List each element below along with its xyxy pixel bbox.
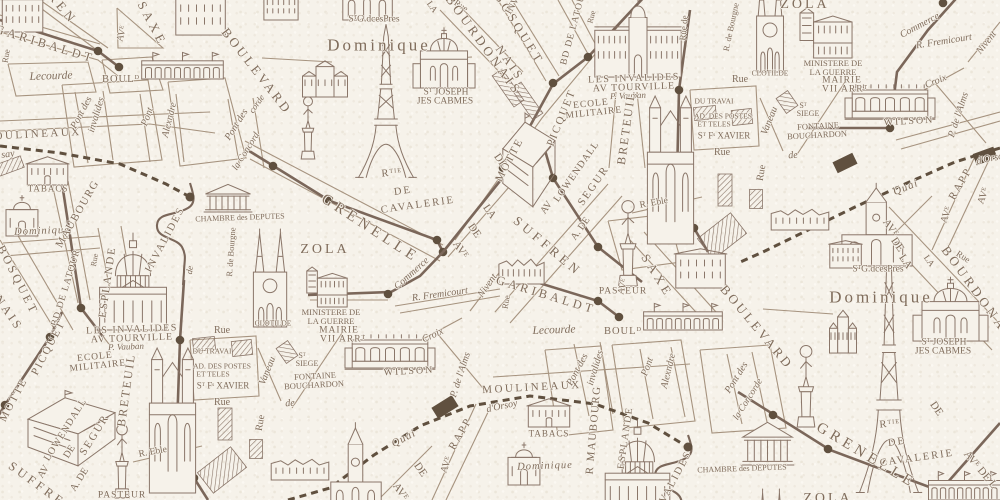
ministere-guerre-icon — [307, 267, 347, 307]
ste-clotilde-icon — [253, 229, 286, 327]
street — [5, 248, 100, 256]
map-label-du-travai: DU TRAVAI — [193, 347, 232, 355]
map-label-s-g-dcespres: SᵀG.dcesPres — [348, 15, 399, 25]
metro-station-dot — [176, 336, 185, 345]
metro-station-dot — [115, 63, 124, 72]
metro-station-dot — [939, 0, 948, 7]
map-label-boul: BOULᴰ — [102, 75, 140, 86]
map-label-p-vauban: P. Vauban — [108, 342, 144, 352]
street — [262, 58, 332, 62]
map-label-dominique: Dominique — [829, 289, 933, 306]
paris-map-wallpaper: RENGARIBALDTLecourdeBOULᴰAVᴱSAXEBOULEVAR… — [0, 0, 1000, 500]
street — [245, 141, 443, 245]
metro-station-dot — [584, 53, 593, 62]
tabacs-building-icon — [527, 399, 571, 427]
palace-facade-icon — [644, 303, 723, 330]
les-invalides-facade-icon — [595, 0, 681, 77]
tabacs-building-icon — [26, 157, 69, 185]
hatched-block — [231, 339, 252, 356]
chambre-deputes-icon — [204, 184, 252, 212]
map-label-lecourde: Lecourde — [29, 71, 72, 84]
ministere-guerre-icon — [800, 8, 852, 58]
map-label-la-guerre: LA GUERRE — [308, 317, 355, 326]
metro-station-dot — [269, 162, 278, 171]
pasteur-statue-icon — [619, 201, 638, 286]
map-label-rue: Rue — [1, 49, 12, 64]
map-label-de: de — [185, 265, 195, 275]
invalides-dome-icon — [605, 420, 670, 500]
hatched-block — [218, 408, 232, 440]
map-label-jes-cabmes: JES CABMES — [915, 347, 971, 357]
map-label-say: say — [1, 149, 16, 161]
map-label-zola: ZOLA — [780, 0, 829, 12]
map-label-clotilde: CLOTILDE — [752, 69, 789, 77]
map-label-zola: ZOLA — [300, 243, 349, 257]
map-label-vii-arr: VII ARRᵀ — [320, 335, 366, 345]
metro-station-dot — [769, 411, 778, 420]
street — [140, 94, 150, 162]
house-row-icon — [271, 459, 329, 480]
st-germain-church-icon — [331, 423, 381, 500]
metro-station-dot — [594, 243, 603, 252]
map-label-de: de — [285, 399, 295, 410]
mansion-icon — [830, 310, 857, 353]
map-label-jes-cabmes: JES CABMES — [417, 97, 473, 107]
hatched-block — [718, 174, 732, 206]
map-label-pasteur: PASTEUR — [98, 491, 146, 500]
statue-icon — [301, 97, 315, 159]
map-label-tabacs: TABACS — [529, 430, 570, 439]
map-label-siege: SIEGE — [296, 360, 319, 368]
map-label-clotilde: CLOTILDE — [255, 319, 292, 327]
street — [637, 92, 645, 168]
hatched-block — [697, 213, 746, 259]
hatched-block — [250, 440, 263, 459]
map-label-r: Rᵀᴵᴱ — [879, 419, 901, 431]
map-label-siege: SIEGE — [797, 110, 820, 118]
map-label-dominique: Dominique — [327, 37, 431, 54]
city-block-icon — [674, 249, 727, 288]
city-block-icon — [174, 0, 227, 35]
metro-station-dot — [77, 304, 86, 313]
map-label-de: de — [788, 151, 798, 162]
map-label-et-teles: ET TELES — [697, 120, 730, 128]
hatched-block — [276, 341, 298, 364]
metro-station-dot — [384, 290, 393, 299]
pasteur-statue-icon — [115, 424, 130, 498]
st-francois-xavier-icon — [647, 96, 693, 244]
statue-icon — [797, 346, 815, 427]
st-francois-xavier-icon — [149, 348, 195, 493]
map-label-et-teles: ET TELES — [196, 370, 229, 378]
map-label-rue: Rue — [714, 148, 730, 158]
map-label-rue: Rue — [501, 295, 512, 310]
mansion-icon — [303, 61, 348, 97]
metro-station-dot — [675, 86, 684, 95]
metro-station-dot — [549, 79, 558, 88]
map-label-lecourde: Lecourde — [532, 325, 575, 338]
map-label-zola: ZOLA — [803, 492, 852, 500]
map-label-tabacs: TABACS — [28, 185, 69, 194]
city-block-icon — [263, 0, 299, 20]
metro-station-dot — [615, 313, 624, 322]
palace-facade-icon — [142, 52, 224, 79]
house-row-icon — [771, 209, 829, 230]
map-label-s-f-xavier: Sᵀ Fˢ XAVIER — [197, 382, 250, 391]
map-label-r: Rᵀᴵᴱ — [381, 168, 403, 180]
metro-station-dot — [433, 236, 442, 245]
rail-station-dot — [186, 193, 195, 202]
map-label-dominique: Dominique — [517, 461, 573, 473]
map-label-rue: Rue — [214, 398, 230, 408]
metro-station-dot — [824, 445, 833, 454]
ste-clotilde-icon — [758, 489, 785, 500]
map-label-rue: Rue — [214, 326, 230, 336]
map-label-s-f-xavier: Sᵀ Fˢ XAVIER — [698, 132, 751, 141]
chambre-deputes-icon — [741, 422, 794, 465]
rail-marker-block — [832, 153, 857, 173]
hatched-block — [750, 190, 763, 209]
map-label-s-g-dcespres: SᵀG.dcesPres — [852, 265, 903, 275]
hatched-block — [197, 447, 246, 493]
map-label-rue: Rue — [732, 75, 748, 85]
map-label-du-travai: DU TRAVAI — [695, 97, 734, 105]
street — [763, 309, 833, 314]
map-label-boul: BOULᴰ — [604, 327, 642, 338]
map-label-vii-arr: VII ARRᵀ — [822, 85, 868, 95]
